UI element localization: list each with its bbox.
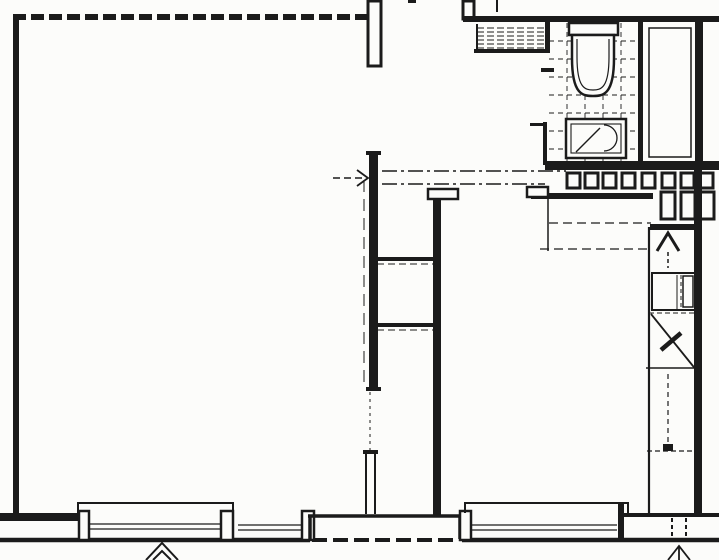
kitchen-door-swing-diagonal xyxy=(651,314,697,371)
door-jamb-bar-room2 xyxy=(527,187,548,197)
door-jamb-bar-mid xyxy=(428,189,458,199)
kitchen-cabinet-inner xyxy=(683,276,693,307)
closet-divider-upper xyxy=(377,257,433,261)
wall-mid-second xyxy=(433,199,441,516)
wall-kitchen-top xyxy=(650,224,696,230)
wall-right-outer-lower xyxy=(694,165,702,516)
wall-below-bathroom xyxy=(545,161,719,170)
arrow-bottom-left-inner xyxy=(153,551,171,560)
radiator-segment xyxy=(603,173,616,188)
wall-mid-lower-cap xyxy=(363,450,378,454)
radiator-segment xyxy=(585,173,598,188)
bathroom-wall-tick xyxy=(530,123,544,126)
sill-wall-left xyxy=(0,513,80,521)
chimney-recess-left xyxy=(368,1,381,66)
toilet-bowl-outer xyxy=(572,35,614,96)
radiator-vertical-segment xyxy=(681,192,695,219)
bathroom-wall-left-upper xyxy=(545,22,550,51)
top-edge-tick xyxy=(408,0,416,3)
wall-mid-upper xyxy=(369,151,378,391)
wall-bath-shaft-divider xyxy=(638,22,643,165)
window1-pier-left xyxy=(79,511,89,540)
radiator-segment xyxy=(642,173,655,188)
closet-divider-lower xyxy=(377,323,433,327)
kitchen-entry-arrow-head xyxy=(657,233,679,251)
radiator-segment xyxy=(567,173,580,188)
window3-pier-right xyxy=(618,503,624,540)
window1-pier-right xyxy=(221,511,233,540)
floor-plan-canvas xyxy=(0,0,719,560)
shaft-inner-liner xyxy=(649,28,691,157)
wall-top-right xyxy=(463,16,719,22)
wall-mid-cap-bottom xyxy=(366,387,381,391)
floor-plan-page xyxy=(0,0,719,560)
radiator-segment xyxy=(622,173,635,188)
kitchen-floor-mark xyxy=(663,444,673,451)
radiator-vertical-segment xyxy=(700,192,714,219)
wall-room2-top xyxy=(531,193,653,199)
toilet-tank xyxy=(569,23,618,35)
wall-mid-cap-top xyxy=(366,151,381,155)
kitchen-cabinet xyxy=(652,273,695,310)
radiator-vertical-segment xyxy=(661,192,675,219)
radiator-segment xyxy=(662,173,675,188)
radiator-segment xyxy=(681,173,694,188)
wall-left-outer xyxy=(13,14,19,515)
window3-pier-left xyxy=(460,511,471,540)
wall-right-outer-upper xyxy=(695,20,703,165)
bathroom-wall-left-lower xyxy=(543,122,547,165)
bathroom-door-jamb xyxy=(541,68,554,72)
